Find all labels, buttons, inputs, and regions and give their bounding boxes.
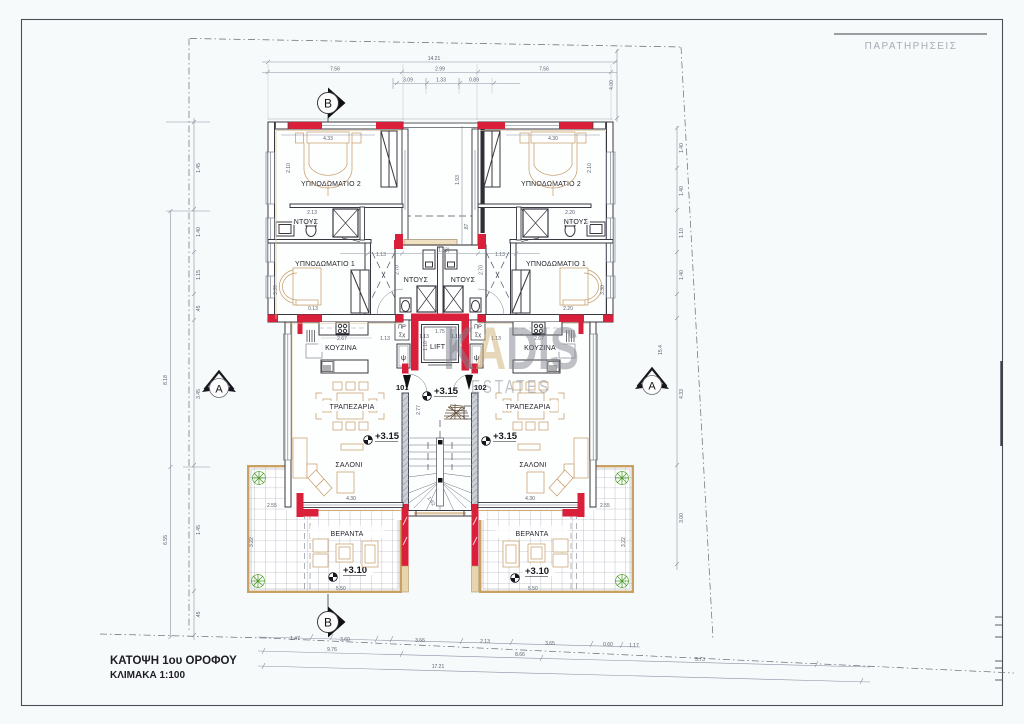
svg-text:+3.10: +3.10	[525, 566, 549, 577]
svg-text:ΚΛΙΜΑΚΑ 1:100: ΚΛΙΜΑΚΑ 1:100	[110, 670, 185, 681]
svg-text:6.55: 6.55	[163, 535, 169, 545]
svg-text:2.55: 2.55	[267, 503, 277, 509]
svg-text:0.89: 0.89	[469, 78, 479, 84]
svg-text:ΥΠΝΟΔΩΜΑΤΙΟ 1: ΥΠΝΟΔΩΜΑΤΙΟ 1	[526, 261, 586, 268]
svg-text:ΣΑΛΟΝΙ: ΣΑΛΟΝΙ	[519, 462, 546, 469]
svg-text:ΚΟΥΖΙΝΑ: ΚΟΥΖΙΝΑ	[325, 345, 357, 352]
svg-text:.87: .87	[464, 223, 470, 230]
svg-text:ΥΠΝΟΔΩΜΑΤΙΟ 2: ΥΠΝΟΔΩΜΑΤΙΟ 2	[301, 181, 361, 188]
svg-text:1.13: 1.13	[495, 252, 505, 258]
svg-text:8.66: 8.66	[515, 652, 525, 658]
svg-text:ΤΡΑΠΕΖΑΡΙΑ: ΤΡΑΠΕΖΑΡΙΑ	[329, 404, 374, 411]
svg-text:.45: .45	[196, 611, 202, 618]
svg-text:1.10: 1.10	[423, 341, 429, 351]
svg-text:3.66: 3.66	[415, 638, 425, 644]
svg-text:ΥΠΝΟΔΩΜΑΤΙΟ 2: ΥΠΝΟΔΩΜΑΤΙΟ 2	[521, 181, 581, 188]
svg-text:ΣΑΛΟΝΙ: ΣΑΛΟΝΙ	[335, 462, 362, 469]
svg-text:7.56: 7.56	[539, 67, 549, 73]
svg-text:2.55: 2.55	[600, 503, 610, 509]
svg-text:15.4: 15.4	[658, 345, 664, 355]
svg-text:A: A	[215, 384, 223, 396]
svg-text:ΚΑΤΟΨΗ 1ου ΟΡΟΦΟΥ: ΚΑΤΟΨΗ 1ου ΟΡΟΦΟΥ	[110, 655, 237, 667]
svg-text:2.13: 2.13	[307, 210, 317, 216]
svg-text:101: 101	[396, 383, 409, 392]
svg-text:2.20: 2.20	[565, 210, 575, 216]
svg-text:2.77: 2.77	[416, 405, 422, 415]
svg-text:1.10: 1.10	[679, 228, 685, 238]
svg-text:3.60: 3.60	[340, 637, 350, 643]
svg-text:ΠΑΡΑΤΗΡΗΣΕΙΣ: ΠΑΡΑΤΗΡΗΣΕΙΣ	[865, 41, 958, 52]
svg-text:2.10: 2.10	[286, 163, 292, 173]
svg-text:2.99: 2.99	[435, 67, 445, 73]
svg-text:3.30: 3.30	[600, 285, 606, 295]
svg-text:ΝΤΟΥΣ: ΝΤΟΥΣ	[564, 219, 589, 226]
svg-text:1.40: 1.40	[679, 143, 685, 153]
svg-text:ψ: ψ	[401, 355, 406, 362]
svg-text:1.40: 1.40	[679, 186, 685, 196]
svg-text:ΠΡ: ΠΡ	[398, 325, 406, 331]
svg-text:1.13: 1.13	[419, 334, 429, 340]
svg-text:1.47: 1.47	[290, 636, 300, 642]
svg-text:1.45: 1.45	[196, 525, 202, 535]
svg-text:3.22: 3.22	[249, 537, 255, 547]
svg-text:2.13: 2.13	[480, 639, 490, 645]
svg-text:2.70: 2.70	[395, 265, 401, 275]
svg-text:3.00: 3.00	[679, 513, 685, 523]
svg-text:B: B	[324, 97, 332, 111]
svg-text:ΒΕΡΑΝΤΑ: ΒΕΡΑΝΤΑ	[330, 531, 363, 538]
svg-text:4.30: 4.30	[346, 496, 356, 502]
svg-text:0.60: 0.60	[603, 642, 613, 648]
svg-text:1.40: 1.40	[196, 227, 202, 237]
svg-text:4.00: 4.00	[609, 80, 615, 90]
svg-text:3.22: 3.22	[621, 537, 627, 547]
svg-text:8.18: 8.18	[163, 375, 169, 385]
svg-text:3.65: 3.65	[545, 641, 555, 647]
svg-text:14.21: 14.21	[428, 56, 441, 62]
svg-text:3.45: 3.45	[196, 389, 202, 399]
svg-text:+3.15: +3.15	[493, 431, 518, 442]
svg-text:1.13: 1.13	[376, 252, 386, 258]
svg-text:0.13: 0.13	[308, 306, 318, 312]
svg-text:1.33: 1.33	[436, 78, 446, 84]
svg-text:1.17: 1.17	[629, 643, 639, 649]
svg-text:ΝΤΟΥΣ: ΝΤΟΥΣ	[294, 219, 319, 226]
svg-text:2.70: 2.70	[479, 265, 485, 275]
svg-text:17.21: 17.21	[432, 664, 445, 670]
svg-text:1.40: 1.40	[679, 270, 685, 280]
svg-text:7.56: 7.56	[330, 67, 340, 73]
svg-text:4.30: 4.30	[548, 136, 558, 142]
svg-text:Σχ: Σχ	[399, 333, 405, 339]
svg-text:4.33: 4.33	[679, 389, 685, 399]
svg-text:1.15: 1.15	[196, 270, 202, 280]
svg-text:2.20: 2.20	[563, 306, 573, 312]
svg-text:1.45: 1.45	[196, 163, 202, 173]
svg-text:ΝΤΟΥΣ: ΝΤΟΥΣ	[404, 277, 429, 284]
svg-text:ΝΤΟΥΣ: ΝΤΟΥΣ	[451, 277, 476, 284]
svg-text:4.30: 4.30	[525, 496, 535, 502]
svg-text:5.50: 5.50	[528, 586, 538, 592]
svg-text:+3.15: +3.15	[375, 431, 400, 442]
svg-text:1.93: 1.93	[455, 175, 461, 185]
svg-text:KADIS: KADIS	[443, 315, 579, 382]
svg-text:9.76: 9.76	[327, 647, 337, 653]
svg-text:1.13: 1.13	[380, 336, 390, 342]
svg-text:ΤΡΑΠΕΖΑΡΙΑ: ΤΡΑΠΕΖΑΡΙΑ	[505, 404, 550, 411]
svg-text:A: A	[648, 381, 656, 393]
svg-text:ΥΠΝΟΔΩΜΑΤΙΟ 1: ΥΠΝΟΔΩΜΑΤΙΟ 1	[295, 261, 355, 268]
svg-text:4.33: 4.33	[323, 136, 333, 142]
svg-text:+3.15: +3.15	[434, 386, 459, 397]
svg-text:5.73: 5.73	[695, 657, 705, 663]
svg-text:5.50: 5.50	[336, 586, 346, 592]
svg-text:ESTATES: ESTATES	[471, 377, 551, 397]
svg-text:B: B	[324, 616, 332, 630]
svg-text:2.10: 2.10	[587, 163, 593, 173]
svg-text:(1.63): (1.63)	[436, 248, 449, 254]
svg-text:3.09: 3.09	[403, 78, 413, 84]
svg-text:.45: .45	[196, 305, 202, 312]
svg-text:ΒΕΡΑΝΤΑ: ΒΕΡΑΝΤΑ	[515, 531, 548, 538]
svg-text:2.67: 2.67	[337, 336, 347, 342]
